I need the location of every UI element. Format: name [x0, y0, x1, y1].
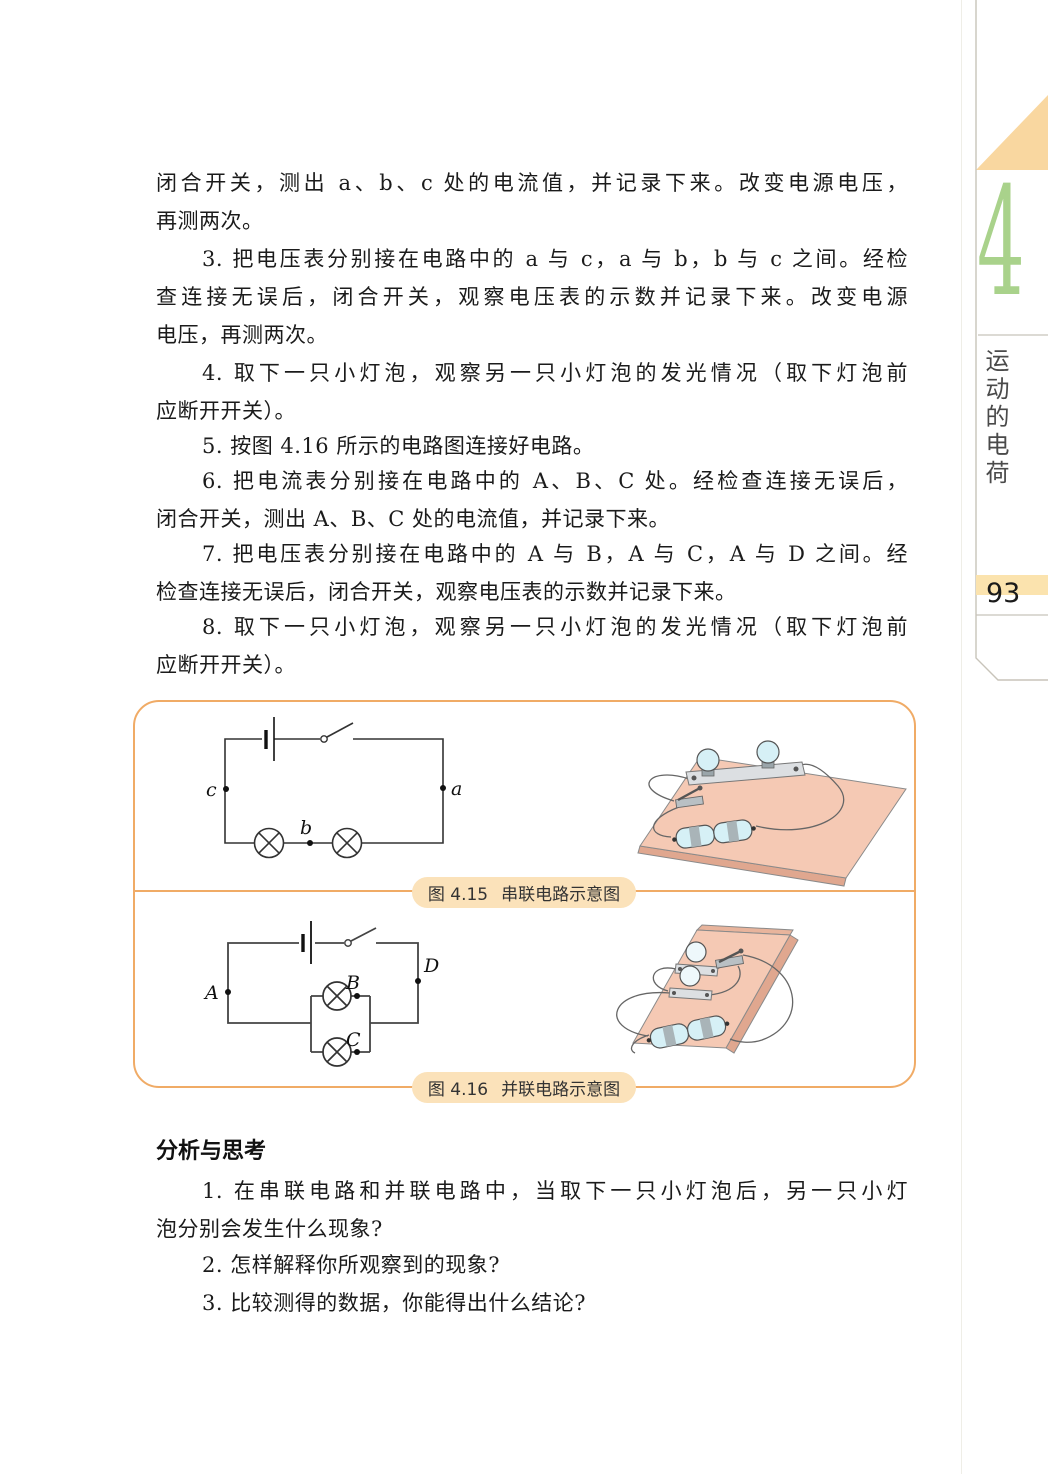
body-line: 应断开开关）。 [156, 650, 296, 680]
circuit-wire [228, 943, 311, 1023]
lamp-symbol [333, 829, 362, 858]
connection-dot-A [225, 989, 231, 995]
figure-caption-label: 图 4.16 [428, 1075, 488, 1100]
analysis-line: 3. 比较测得的数据，你能得出什么结论? [202, 1288, 586, 1318]
point-label-c: c [206, 779, 217, 801]
body-line: 检查连接无误后，闭合开关，观察电压表的示数并记录下来。 [156, 577, 737, 607]
series-circuit-photo [605, 705, 920, 890]
point-label-D: D [423, 955, 439, 977]
connection-dot-b [307, 840, 313, 846]
point-label-b: b [300, 817, 312, 839]
body-line: 电压，再测两次。 [156, 320, 328, 350]
point-label-A: A [203, 982, 219, 1004]
series-circuit-diagram: c a b [190, 700, 490, 880]
point-label-a: a [451, 778, 462, 800]
body-line: 再测两次。 [156, 206, 264, 236]
switch-symbol [345, 928, 376, 946]
figure-caption-title: 串联电路示意图 [501, 880, 620, 905]
chapter-number: 4 [977, 168, 1025, 318]
analysis-heading: 分析与思考 [156, 1133, 266, 1165]
point-label-B: B [345, 972, 360, 994]
page-number: 93 [986, 578, 1020, 609]
circuit-wire [370, 943, 418, 1023]
analysis-line: 2. 怎样解释你所观察到的现象? [202, 1250, 500, 1280]
body-line: 8. 取下一只小灯泡，观察另一只小灯泡的发光情况（取下灯泡前 [202, 612, 908, 642]
body-line: 应断开开关）。 [156, 396, 296, 426]
battery-symbol [266, 717, 274, 761]
analysis-line: 1. 在串联电路和并联电路中，当取下一只小灯泡后，另一只小灯 [202, 1176, 908, 1206]
body-line: 5. 按图 4.16 所示的电路图连接好电路。 [202, 431, 594, 461]
switch-symbol [321, 723, 353, 742]
body-line: 查连接无误后，闭合开关，观察电压表的示数并记录下来。改变电源 [156, 282, 908, 312]
body-line: 7. 把电压表分别接在电路中的 A 与 B，A 与 C，A 与 D 之间。经 [202, 539, 908, 569]
analysis-line: 泡分别会发生什么现象? [156, 1214, 383, 1244]
circuit-wire [225, 739, 443, 843]
body-line: 闭合开关，测出 a、b、c 处的电流值，并记录下来。改变电源电压， [156, 168, 908, 198]
connection-dot-a [440, 785, 446, 791]
body-line: 3. 把电压表分别接在电路中的 a 与 c，a 与 b，b 与 c 之间。经检 [202, 244, 908, 274]
lamp-symbol [255, 829, 284, 858]
connection-dot-D [415, 978, 421, 984]
point-label-C: C [346, 1029, 361, 1051]
textbook-page: 闭合开关，测出 a、b、c 处的电流值，并记录下来。改变电源电压， 再测两次。 … [0, 0, 1048, 1474]
body-line: 4. 取下一只小灯泡，观察另一只小灯泡的发光情况（取下灯泡前 [202, 358, 908, 388]
figure-caption-title: 并联电路示意图 [501, 1075, 620, 1100]
figure-caption-4-16: 图 4.16 并联电路示意图 [412, 1072, 636, 1103]
figure-caption-4-15: 图 4.15 串联电路示意图 [412, 877, 636, 908]
battery-symbol [303, 921, 311, 964]
figure-caption-label: 图 4.15 [428, 880, 488, 905]
body-line: 闭合开关，测出 A、B、C 处的电流值，并记录下来。 [156, 504, 670, 534]
parallel-circuit-photo [605, 915, 920, 1085]
body-line: 6. 把电流表分别接在电路中的 A、B、C 处。经检查连接无误后， [202, 466, 908, 496]
chapter-title-vertical: 运动的电荷 [978, 348, 1013, 488]
parallel-circuit-diagram: A D B C [190, 905, 490, 1080]
connection-dot-c [223, 786, 229, 792]
